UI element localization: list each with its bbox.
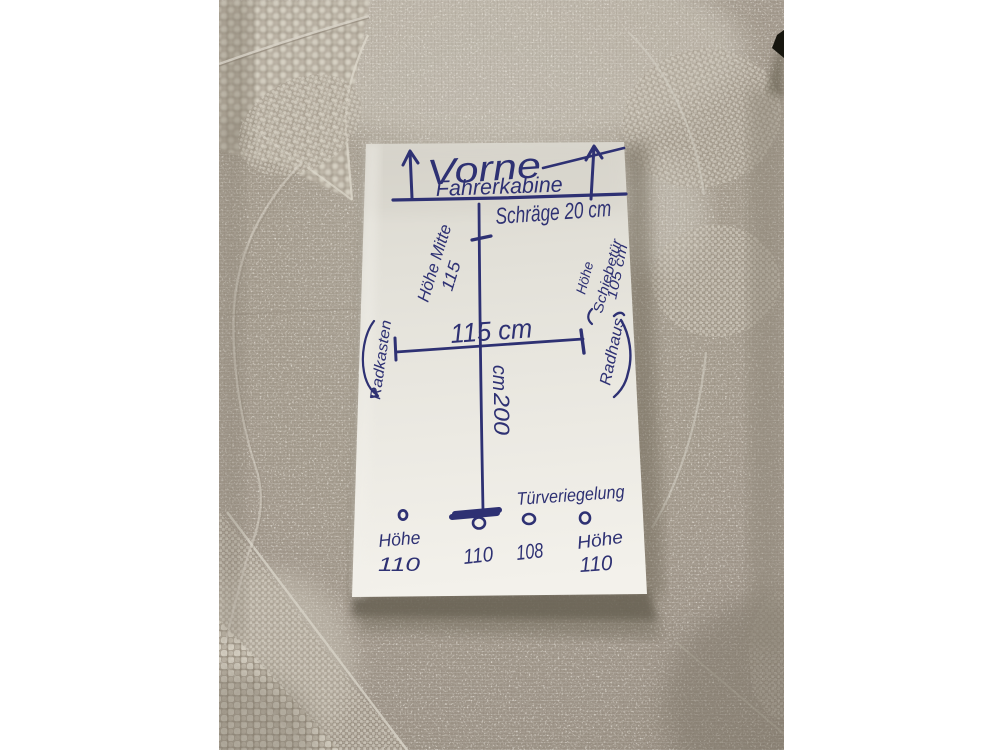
svg-text:115 cm: 115 cm bbox=[449, 313, 533, 349]
svg-text:Fahrerkabine: Fahrerkabine bbox=[435, 172, 563, 201]
svg-text:200: 200 bbox=[489, 392, 514, 436]
svg-text:110: 110 bbox=[378, 555, 421, 576]
svg-text:Höhe: Höhe bbox=[378, 527, 422, 551]
svg-text:cm: cm bbox=[488, 365, 510, 391]
svg-text:110: 110 bbox=[462, 543, 495, 569]
svg-text:110: 110 bbox=[579, 552, 614, 577]
svg-text:108: 108 bbox=[515, 539, 544, 565]
